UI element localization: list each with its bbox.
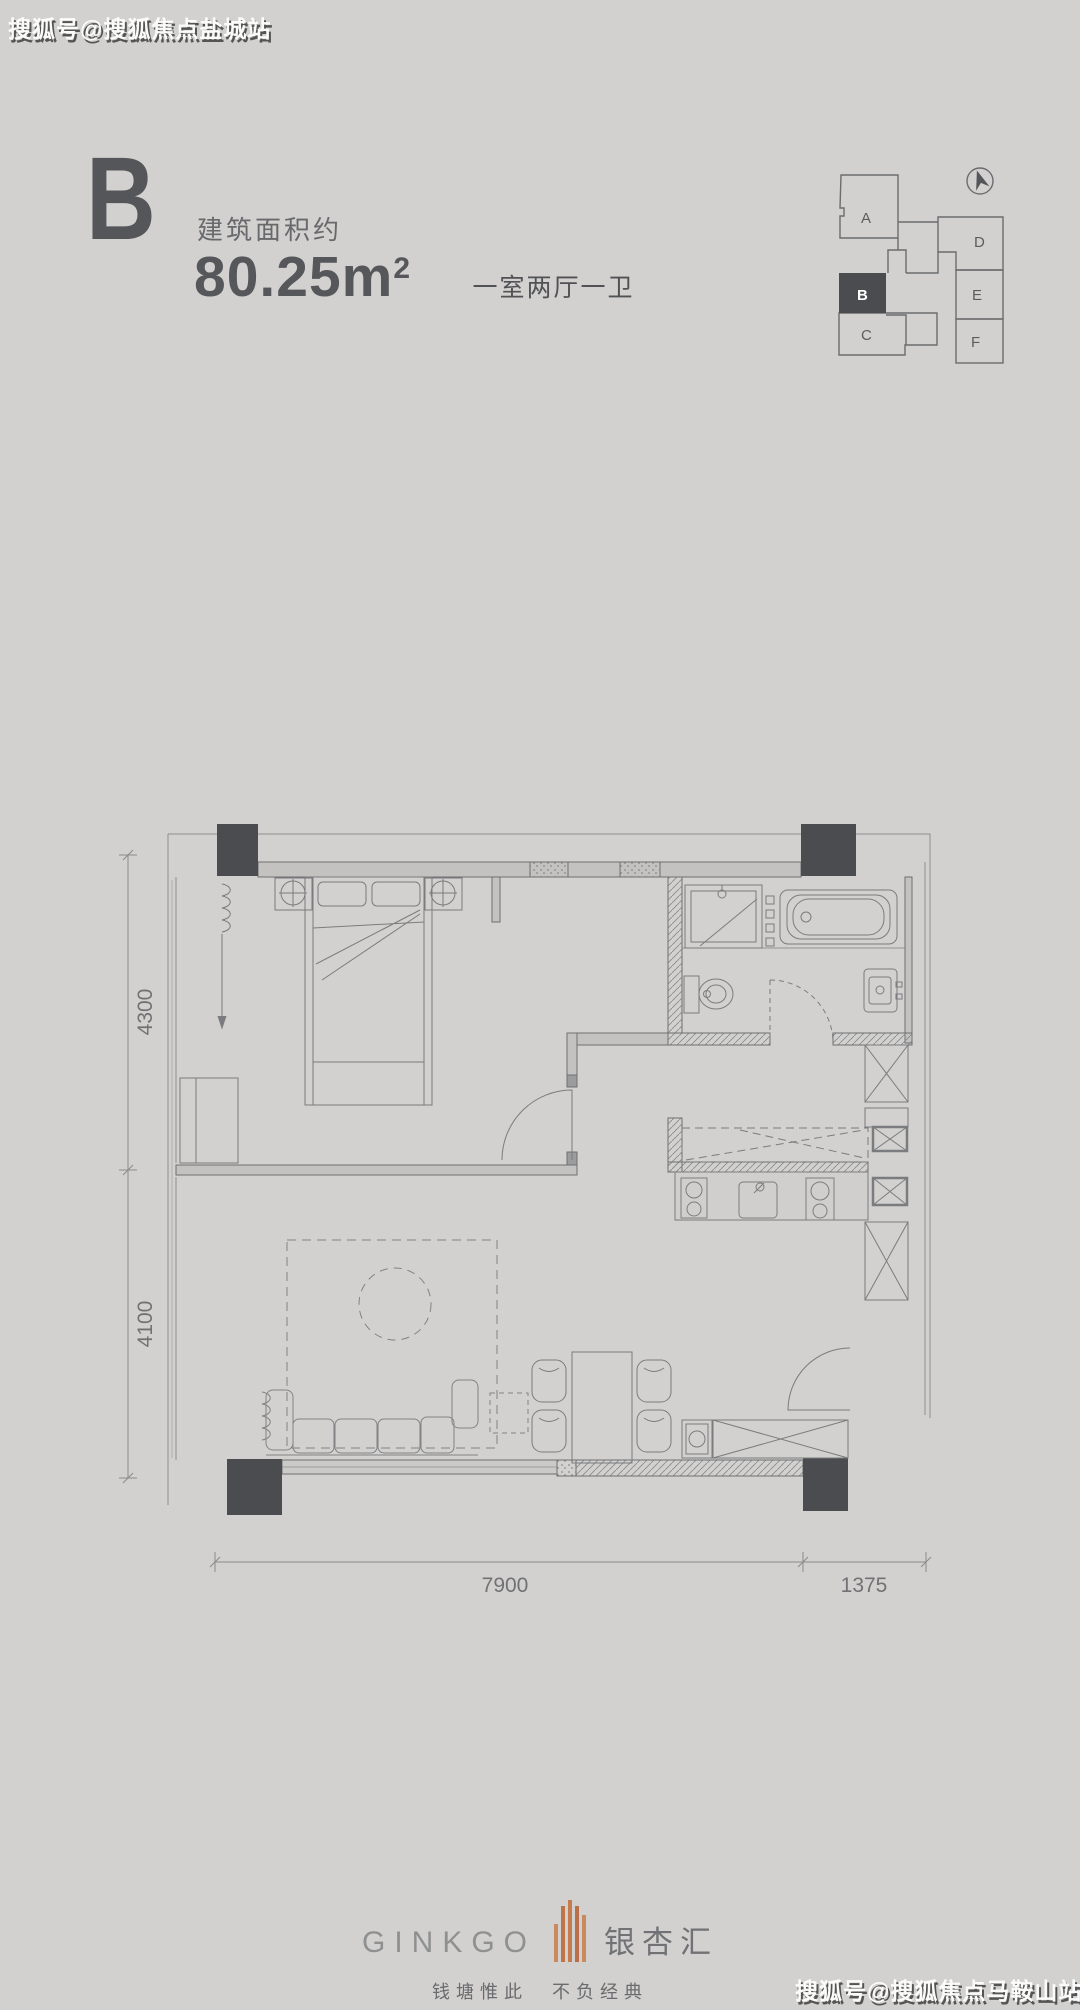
entry-door-arc (788, 1348, 850, 1410)
dim-left-bottom: 4100 (134, 1301, 157, 1348)
side-table (490, 1393, 528, 1433)
key-plan-unit-d (938, 217, 1003, 270)
room-layout-label: 一室两厅一卫 (472, 274, 634, 302)
key-plan-label-f: F (971, 334, 980, 351)
dim-bottom-main: 7900 (482, 1574, 529, 1597)
walls (176, 862, 912, 1476)
bathtub (780, 890, 897, 944)
watermark-bottom-right: 搜狐号@搜狐焦点马鞍山站 (795, 1972, 1080, 2006)
bedroom-door-arc (502, 1090, 572, 1160)
area-superscript: 2 (393, 252, 410, 285)
key-plan-label-a: A (861, 210, 871, 227)
key-plan-label-e: E (972, 287, 982, 304)
ginkgo-bars-icon (554, 1900, 586, 1962)
dining-chair (532, 1360, 566, 1402)
brand-name-en: GINKGO (362, 1928, 536, 1958)
sofa-arm-right (452, 1380, 478, 1428)
toilet-tank (684, 976, 699, 1013)
page: 搜狐号@搜狐焦点盐城站 B 建筑面积约 80.25m2 一室两厅一卫 A B C… (0, 0, 1080, 2010)
bathroom-door-arc (770, 980, 833, 1043)
dim-left-top: 4300 (134, 989, 157, 1036)
kitchen-counter (675, 1172, 868, 1220)
bathroom (682, 885, 905, 1043)
area-line: 80.25m2 一室两厅一卫 (194, 244, 634, 310)
dining-table (572, 1352, 632, 1463)
key-plan-corridor (886, 222, 938, 345)
rug (287, 1240, 497, 1448)
brand-name-cn: 银杏汇 (604, 1927, 718, 1958)
dim-bottom-right: 1375 (841, 1574, 888, 1597)
unit-letter: B (86, 140, 156, 258)
duvet-folds (313, 910, 424, 1062)
dresser (180, 1078, 238, 1163)
area-value: 80.25m (194, 245, 393, 309)
key-plan: A B C D E F (810, 160, 1080, 390)
key-plan-unit-c (839, 313, 937, 355)
key-plan-label-d: D (974, 234, 985, 251)
bedroom (180, 877, 572, 1163)
north-arrow-icon (970, 168, 989, 190)
toilet-bowl (699, 979, 733, 1009)
shower (685, 885, 762, 948)
key-plan-label-b: B (857, 287, 868, 304)
overhead-cabinet (682, 1128, 868, 1162)
living-room (262, 1240, 528, 1455)
dining-chair (637, 1410, 671, 1452)
dining-chair (532, 1410, 566, 1452)
watermark-top-left: 搜狐号@搜狐焦点盐城站 (8, 10, 271, 44)
pillow (372, 882, 420, 906)
pillow (318, 882, 366, 906)
radiator-coil (222, 884, 230, 932)
dining-chair (637, 1360, 671, 1402)
bathtub-drain (801, 912, 811, 922)
dining-set (532, 1352, 671, 1463)
round-table (359, 1268, 431, 1340)
bed (305, 877, 432, 1105)
area-label: 建筑面积约 (197, 210, 342, 247)
service-shafts (865, 1045, 908, 1300)
key-plan-unit-a (840, 175, 898, 238)
kitchen (675, 1128, 868, 1220)
entry (682, 1348, 850, 1458)
floor-plan: 4300 4100 7900 1375 (100, 780, 980, 1600)
key-plan-label-c: C (861, 327, 872, 344)
